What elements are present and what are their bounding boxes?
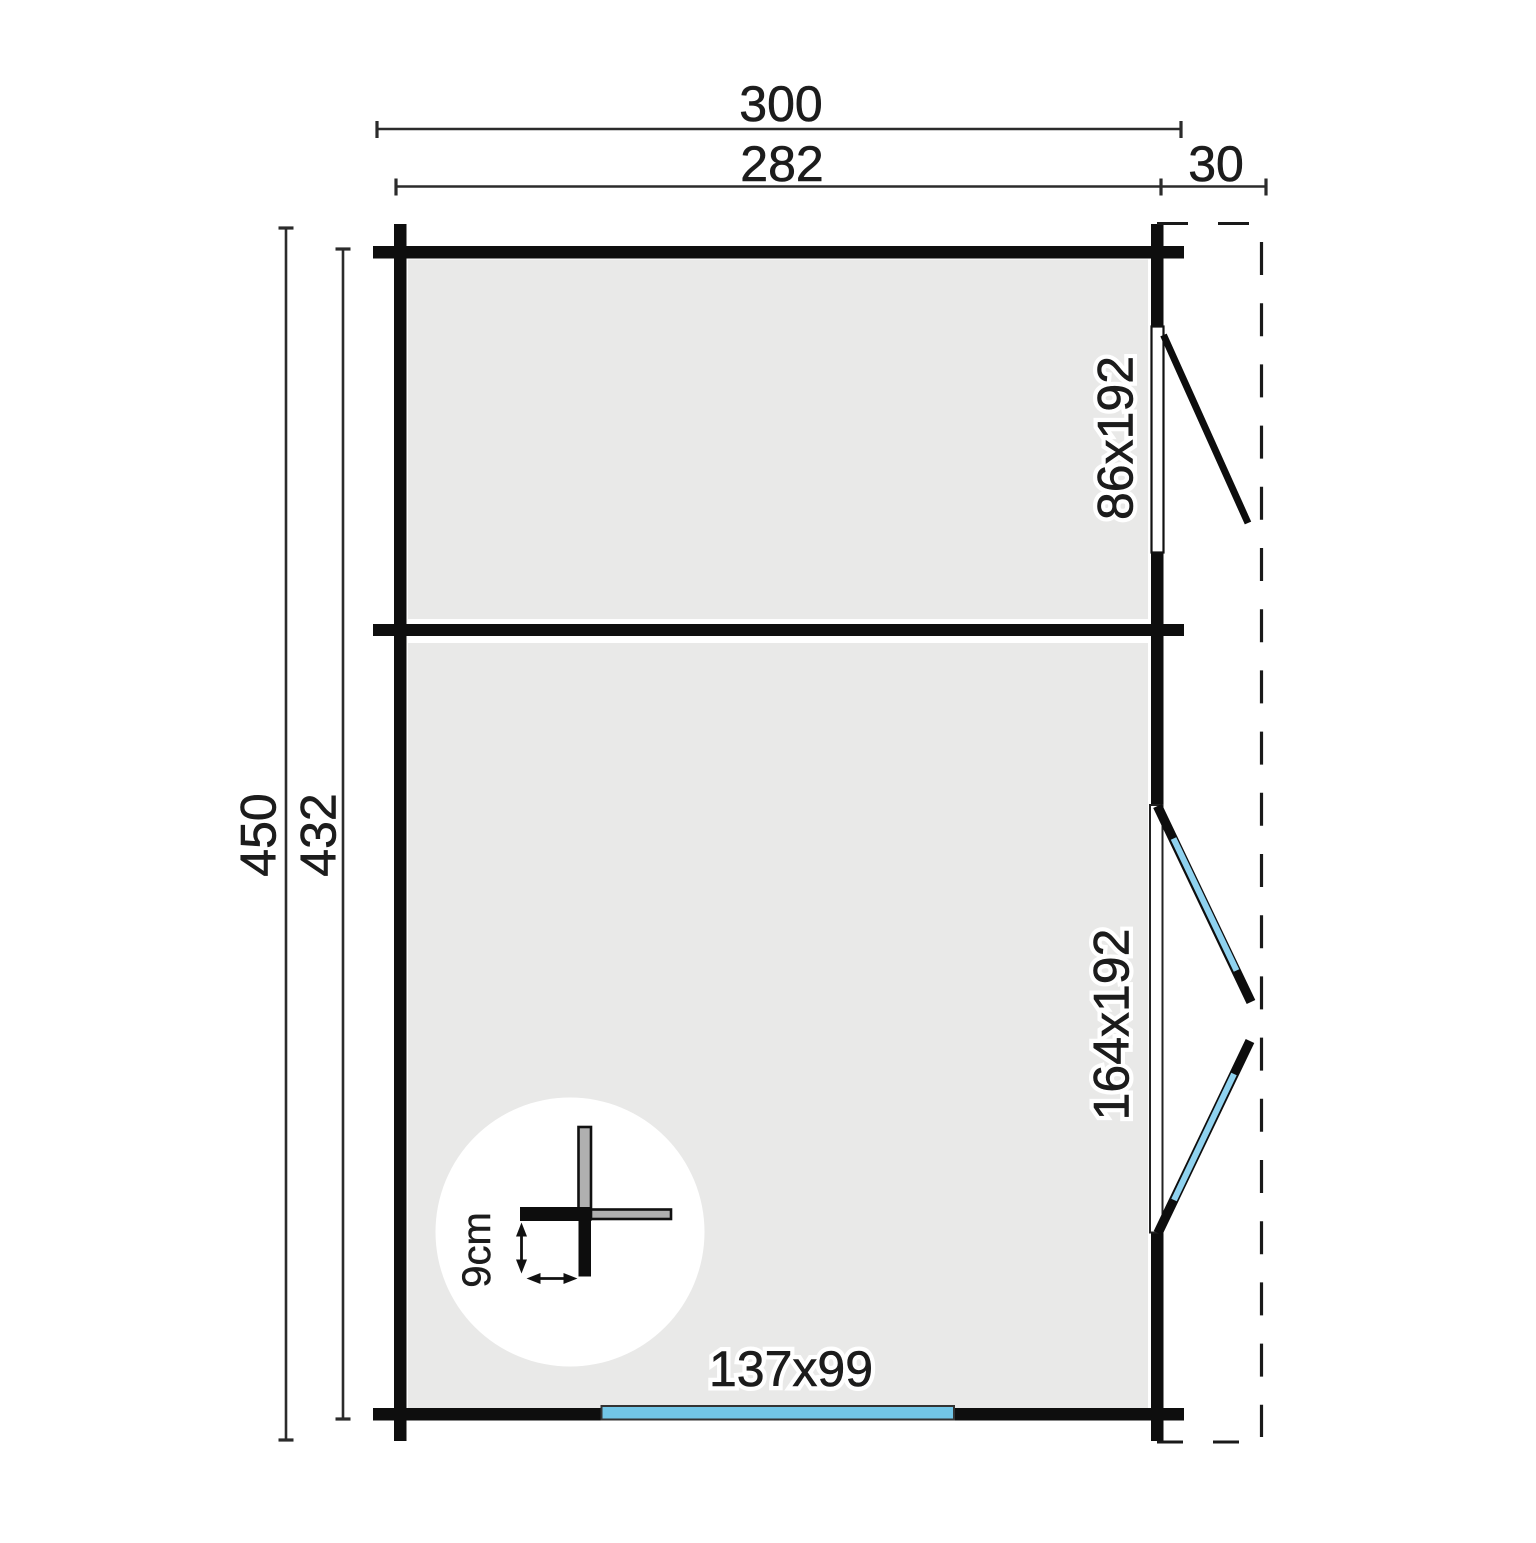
svg-text:86x192: 86x192	[1088, 356, 1144, 520]
svg-text:164x192: 164x192	[1084, 929, 1140, 1121]
svg-text:9cm: 9cm	[455, 1212, 499, 1288]
svg-text:282: 282	[740, 136, 823, 192]
svg-text:137x99: 137x99	[709, 1341, 873, 1397]
svg-text:30: 30	[1188, 136, 1244, 192]
svg-text:432: 432	[291, 793, 347, 876]
svg-text:300: 300	[739, 76, 822, 132]
svg-text:450: 450	[231, 793, 287, 876]
